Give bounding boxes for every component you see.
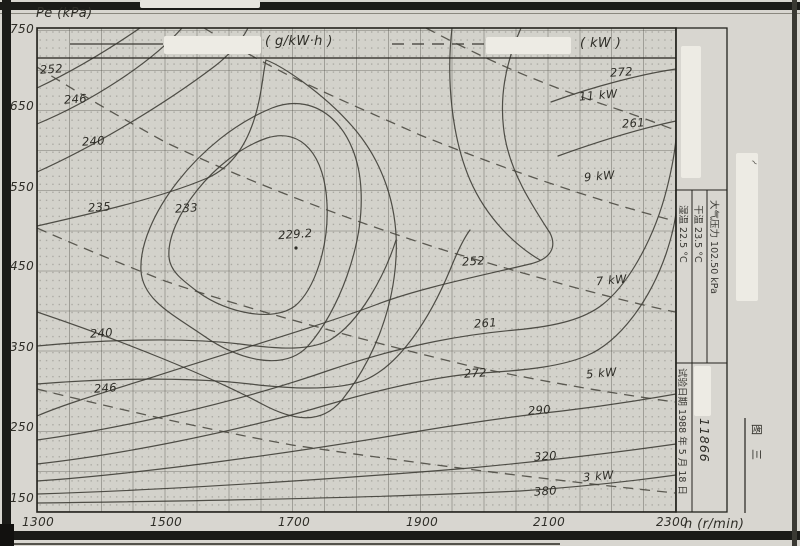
test-date-text: 试验日期 1988 年 5 月 18 日: [676, 368, 690, 495]
whiteout-table-lower: [694, 366, 711, 416]
power-label-9kW: 9 kW: [583, 168, 615, 185]
bsfc-unit-label: ( g/kW·h ): [265, 34, 333, 49]
figure-caption: 图三: [749, 424, 765, 474]
x-tick-1700: 1700: [278, 515, 310, 529]
wet-temp-text: 湿温 22.5 °C: [677, 205, 691, 263]
atm-pressure-text: 大气压力 102.50 kPa: [708, 200, 722, 294]
y-tick-650: 650: [10, 99, 34, 113]
power-unit-label: ( kW ): [580, 36, 621, 51]
whiteout-table-top: [681, 46, 701, 178]
whiteout-top-margin: [140, 0, 260, 8]
dry-temp-text: 干温 23.5 °C: [692, 205, 706, 263]
y-tick-750: 750: [10, 22, 34, 36]
scanned-engine-map-page: { "figure": { "caption": "图三" }, "axes":…: [0, 0, 800, 546]
contour-label-380: 380: [534, 483, 558, 499]
contour-label-272: 272: [464, 365, 488, 381]
contour-label-320: 320: [534, 448, 558, 464]
y-tick-350: 350: [10, 340, 34, 354]
x-tick-1300: 1300: [22, 515, 54, 529]
x-tick-1900: 1900: [406, 515, 438, 529]
contour-label-290: 290: [528, 402, 552, 418]
contour-label-229.2: 229.2: [278, 226, 313, 242]
y-tick-150: 150: [10, 491, 34, 505]
scan-border-top: [0, 2, 800, 10]
contour-label-246: 246: [94, 380, 118, 396]
x-tick-1500: 1500: [150, 515, 182, 529]
scan-border-top-thin: [0, 13, 800, 14]
whiteout-band-left: [164, 36, 261, 54]
contour-label-246: 246: [64, 91, 88, 107]
x-tick-2300: 2300: [656, 515, 688, 529]
serial-number-text: 11866: [697, 418, 712, 463]
contour-label-233: 233: [175, 200, 199, 216]
y-tick-450: 450: [10, 259, 34, 273]
y-axis-title: Pe (kPa): [36, 6, 93, 21]
scan-border-bottom: [0, 531, 800, 540]
x-tick-2100: 2100: [533, 515, 565, 529]
contour-label-261: 261: [474, 315, 498, 331]
contour-label-240: 240: [82, 133, 106, 149]
x-axis-title: n (r/min): [684, 517, 744, 532]
contour-label-240: 240: [90, 325, 114, 341]
power-label-7kW: 7 kW: [595, 272, 627, 289]
y-tick-550: 550: [10, 180, 34, 194]
contour-label-272: 272: [610, 64, 634, 80]
power-label-3kW: 3 kW: [582, 468, 614, 485]
scan-border-right: [792, 0, 797, 546]
scan-border-left: [2, 0, 11, 546]
contour-label-252: 252: [40, 61, 64, 77]
scan-corner-blotch: [0, 524, 14, 546]
scan-border-bottom-thin: [0, 543, 560, 545]
contour-label-235: 235: [88, 199, 112, 215]
y-tick-250: 250: [10, 420, 34, 434]
contour-label-261: 261: [622, 115, 646, 131]
whiteout-right-margin: [736, 153, 758, 301]
power-label-5kW: 5 kW: [585, 365, 617, 382]
whiteout-band-right: [486, 37, 571, 54]
contour-label-252: 252: [462, 253, 486, 269]
